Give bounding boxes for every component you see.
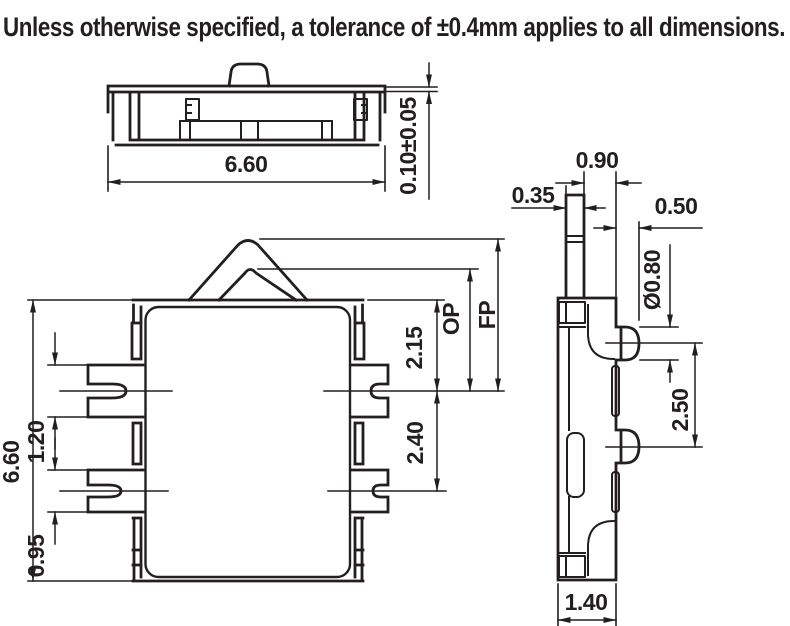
front-view-outline: [132, 300, 364, 581]
technical-drawing-page: Unless otherwise specified, a tolerance …: [0, 0, 790, 626]
dim-edge-to-terminal1: 2.15: [401, 326, 427, 369]
tolerance-note: Unless otherwise specified, a tolerance …: [3, 12, 785, 42]
front-view: 6.60 1.20 0.95 2.15 2.40 OP FP: [0, 239, 504, 581]
side-view-outline: [558, 195, 639, 580]
dim-terminal-pitch: 2.40: [402, 422, 428, 465]
dim-pin-diameter: Ø0.80: [639, 250, 665, 310]
front-view-actuator-triangle: [189, 241, 307, 301]
top-view: 6.60 0.10±0.05: [108, 63, 437, 199]
dim-stem-to-edge: 0.90: [576, 147, 619, 173]
top-view-details: [180, 99, 367, 140]
dim-depth: 1.40: [565, 589, 608, 615]
dim-top-step-height: 0.10±0.05: [395, 96, 421, 194]
front-view-extension-lines: [28, 239, 504, 581]
dim-terminal1-width: 1.20: [23, 421, 49, 464]
dim-top-width: 6.60: [225, 151, 268, 177]
dim-fp-label: FP: [474, 301, 500, 330]
side-view: 0.90 0.35 0.50 Ø0.80 2.50 1.40: [512, 147, 702, 626]
dim-front-height: 6.60: [0, 441, 24, 484]
front-view-inner-body: [146, 307, 351, 577]
dim-op-label: OP: [438, 303, 464, 335]
dim-stem-width: 0.35: [512, 182, 555, 208]
side-view-left-slot: [567, 433, 584, 497]
dim-terminal2-width: 0.95: [23, 534, 49, 577]
dim-pin-pitch: 2.50: [667, 389, 693, 432]
drawing-canvas: Unless otherwise specified, a tolerance …: [0, 0, 790, 626]
top-view-outline: [108, 64, 385, 145]
dim-pin-protrusion: 0.50: [655, 193, 698, 219]
